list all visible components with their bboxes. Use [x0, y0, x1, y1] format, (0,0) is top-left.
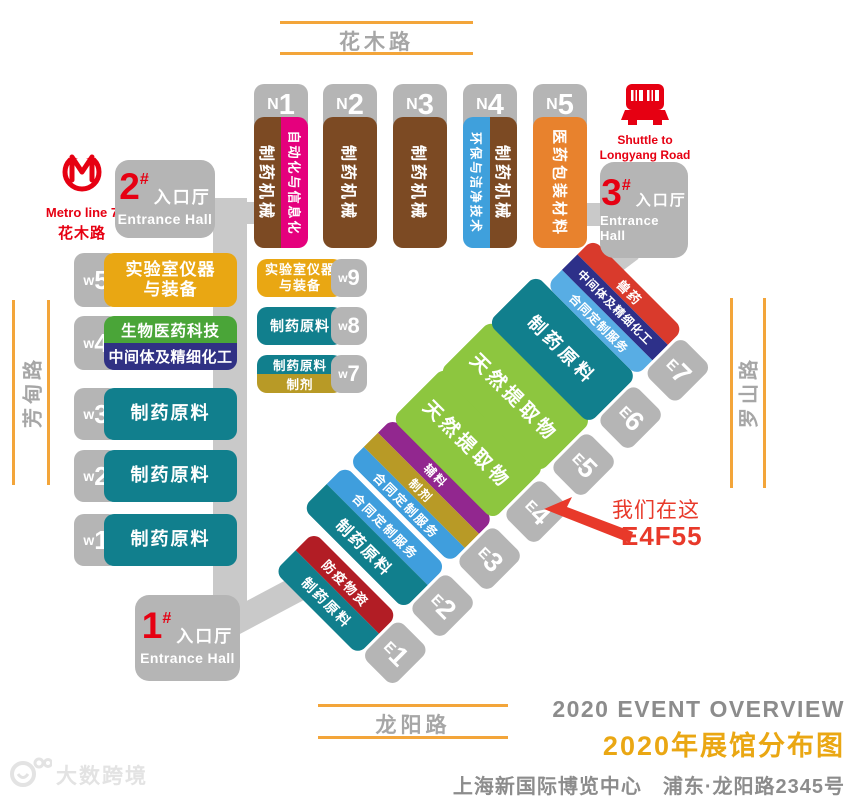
shuttle-en-line1: Shuttle to [597, 133, 693, 148]
hall-w2-body: 制药原料 [104, 450, 237, 502]
watermark-text: 大数跨境 [56, 760, 148, 790]
hall-w5-line2: 与装备 [104, 280, 237, 300]
hall-n2-number: 2 [348, 91, 364, 120]
hall-w5: w5 实验室仪器 与装备 [74, 253, 237, 307]
hall-n2-stripe-machinery: 制药机械 [323, 117, 377, 248]
entrance-2-en: Entrance Hall [118, 211, 213, 227]
hall-n1-stripe-automation: 自动化与信息化 [281, 117, 308, 248]
hall-n4-stripe-1-label: 环保与洁净技术 [467, 132, 486, 234]
road-left-line-inner [47, 300, 50, 485]
hall-n2-stripe-1-label: 制药机械 [338, 144, 362, 220]
event-overview-title-cn: 2020年展馆分布图 [453, 724, 845, 763]
entrance-hall-1: 1# 入口厅 Entrance Hall [135, 595, 240, 681]
hall-w9: 实验室仪器 与装备 w9 [257, 259, 367, 297]
entrance-3-en: Entrance Hall [600, 213, 688, 243]
entrance-1-hash: # [162, 610, 171, 628]
hall-w4-body: 生物医药科技 中间体及精细化工 [104, 316, 237, 370]
hall-n1-number: 1 [279, 91, 295, 120]
hall-n1-stripe-machinery: 制药机械 [254, 117, 281, 248]
road-top-line-upper [280, 21, 473, 24]
hall-n5-prefix: N [546, 97, 558, 113]
hall-n4-stripe-machinery: 制药机械 [490, 117, 517, 248]
entrance-3-hash: # [622, 177, 631, 195]
hall-w2-prefix: w [83, 469, 94, 483]
hall-w1: w1 制药原料 [74, 514, 237, 566]
hall-n4: N4 环保与洁净技术 制药机械 [463, 84, 517, 248]
shuttle-en-line2: Longyang Road [597, 148, 693, 163]
hall-w7-label: w7 [331, 355, 367, 393]
hall-n5-number: 5 [558, 91, 574, 120]
hall-n3-stripe-machinery: 制药机械 [393, 117, 447, 248]
event-overview-title-en: 2020 EVENT OVERVIEW [453, 696, 845, 723]
metro-line7-icon [60, 181, 104, 198]
hall-n3-prefix: N [406, 97, 418, 113]
watermark: 大数跨境 [8, 755, 148, 794]
road-top-label: 花木路 [280, 26, 473, 56]
hall-w4-prefix: w [83, 336, 94, 350]
entrance-3-number: 3 [601, 177, 622, 209]
hall-n3-number: 3 [418, 91, 434, 120]
entrance-1-number: 1 [142, 610, 163, 642]
hall-w3-prefix: w [83, 407, 94, 421]
road-right-label: 罗山路 [733, 356, 762, 428]
hall-w5-prefix: w [83, 273, 94, 287]
hall-w4-stripe-intermediates: 中间体及精细化工 [104, 343, 237, 370]
entrance-hall-3: 3# 入口厅 Entrance Hall [600, 162, 688, 258]
road-right-line-outer [763, 298, 766, 488]
hall-w3-category: 制药原料 [104, 403, 237, 425]
hall-w9-number: 9 [348, 267, 360, 289]
hall-w1-body: 制药原料 [104, 514, 237, 566]
hall-n2: N2 制药机械 [323, 84, 377, 248]
watermark-logo-icon [8, 755, 52, 794]
hall-n3: N3 制药机械 [393, 84, 447, 248]
hall-n3-stripe-1-label: 制药机械 [408, 144, 432, 220]
road-left-line-outer [12, 300, 15, 485]
venue-address: 上海新国际博览中心 浦东·龙阳路2345号 [453, 770, 845, 799]
hall-w8-number: 8 [348, 315, 360, 337]
hall-w7-number: 7 [348, 363, 360, 385]
hall-w7: 制药原料 制剂 w7 [257, 355, 367, 393]
annotation-text: 我们在这 [612, 494, 700, 524]
hall-w2-category: 制药原料 [104, 465, 237, 487]
hall-w8: 制药原料 w8 [257, 307, 367, 345]
hall-n1-stripe-2-label: 自动化与信息化 [285, 130, 304, 235]
entrance-2-hash: # [140, 171, 149, 189]
hall-w9-prefix: w [338, 272, 347, 284]
hall-n4-prefix: N [476, 97, 488, 113]
hall-w2: w2 制药原料 [74, 450, 237, 502]
entrance-2-cn: 入口厅 [154, 183, 211, 208]
hall-n1-stripe-1-label: 制药机械 [256, 144, 280, 220]
hall-w4-stripe-biotech: 生物医药科技 [104, 316, 237, 343]
entrance-3-cn: 入口厅 [636, 189, 687, 210]
hall-n2-prefix: N [336, 97, 348, 113]
hall-w1-prefix: w [83, 533, 94, 547]
hall-w8-label: w8 [331, 307, 367, 345]
hall-w5-body: 实验室仪器 与装备 [104, 253, 237, 307]
road-left-label: 芳甸路 [17, 356, 46, 428]
hall-n4-stripe-2-label: 制药机械 [492, 144, 516, 220]
hall-w3-body: 制药原料 [104, 388, 237, 440]
entrance-1-en: Entrance Hall [140, 650, 235, 666]
entrance-hall-2: 2# 入口厅 Entrance Hall [115, 160, 215, 238]
entrance-1-cn: 入口厅 [176, 622, 233, 647]
corridor-north-left [213, 202, 259, 224]
hall-n5-stripe-packaging: 医药包装材料 [533, 117, 587, 248]
hall-n1-prefix: N [267, 97, 279, 113]
hall-n5-stripe-1-label: 医药包装材料 [550, 128, 571, 236]
hall-w8-prefix: w [338, 320, 347, 332]
hall-w4: w4 生物医药科技 中间体及精细化工 [74, 316, 237, 370]
shuttle-bus-icon [619, 115, 671, 132]
entrance-2-number: 2 [119, 171, 140, 203]
venue-map: { "colors": { "road_orange": "#f3a53a", … [0, 0, 860, 797]
hall-n4-number: 4 [488, 91, 504, 120]
hall-w9-label: w9 [331, 259, 367, 297]
hall-n1: N1 制药机械 自动化与信息化 [254, 84, 308, 248]
hall-n5: N5 医药包装材料 [533, 84, 587, 248]
footer-titles: 2020 EVENT OVERVIEW 2020年展馆分布图 上海新国际博览中心… [453, 696, 845, 799]
hall-w7-prefix: w [338, 368, 347, 380]
annotation-booth-code: E4F55 [621, 521, 703, 552]
hall-n4-stripe-cleantech: 环保与洁净技术 [463, 117, 490, 248]
hall-w1-category: 制药原料 [104, 529, 237, 551]
hall-w3: w3 制药原料 [74, 388, 237, 440]
hall-w5-line1: 实验室仪器 [104, 260, 237, 280]
